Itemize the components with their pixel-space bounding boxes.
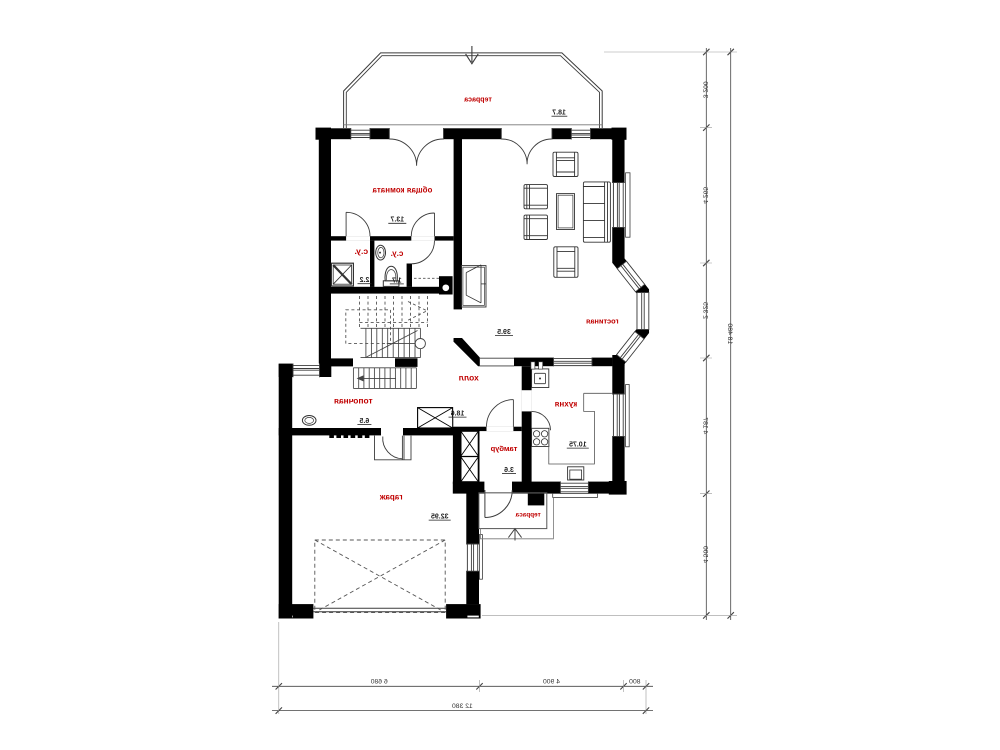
svg-text:тамбур: тамбур — [490, 444, 517, 453]
svg-text:18.7: 18.7 — [552, 110, 566, 117]
svg-text:6.5: 6.5 — [359, 418, 369, 425]
svg-text:4 187: 4 187 — [702, 417, 709, 434]
svg-text:3 200: 3 200 — [702, 81, 709, 98]
svg-text:4 265: 4 265 — [702, 187, 709, 204]
svg-text:18.6: 18.6 — [451, 411, 465, 418]
svg-text:32.95: 32.95 — [431, 514, 449, 521]
svg-text:4 900: 4 900 — [543, 679, 560, 686]
svg-text:топочная: топочная — [334, 395, 373, 405]
svg-text:3.6: 3.6 — [504, 467, 514, 474]
svg-text:4 500: 4 500 — [702, 546, 709, 563]
svg-text:6 680: 6 680 — [370, 679, 387, 686]
svg-text:2.2: 2.2 — [360, 277, 370, 284]
svg-text:гараж: гараж — [379, 493, 402, 502]
svg-text:13.7: 13.7 — [390, 217, 404, 224]
svg-text:холл: холл — [459, 373, 479, 383]
svg-text:18 480: 18 480 — [726, 323, 733, 344]
svg-text:общая комната: общая комната — [372, 186, 433, 195]
svg-text:10.75: 10.75 — [569, 442, 587, 449]
svg-text:терраса: терраса — [515, 512, 541, 519]
svg-text:800: 800 — [629, 679, 641, 686]
svg-text:39.5: 39.5 — [497, 329, 511, 336]
svg-text:терраса: терраса — [464, 97, 492, 104]
svg-text:с.у.: с.у. — [391, 249, 404, 258]
svg-text:с.у.: с.у. — [355, 246, 369, 256]
svg-text:кухня: кухня — [554, 399, 577, 408]
svg-text:гостиная: гостиная — [586, 317, 619, 326]
svg-text:1.7: 1.7 — [392, 277, 402, 284]
svg-text:2 325: 2 325 — [702, 302, 709, 319]
svg-text:12 380: 12 380 — [452, 703, 473, 710]
